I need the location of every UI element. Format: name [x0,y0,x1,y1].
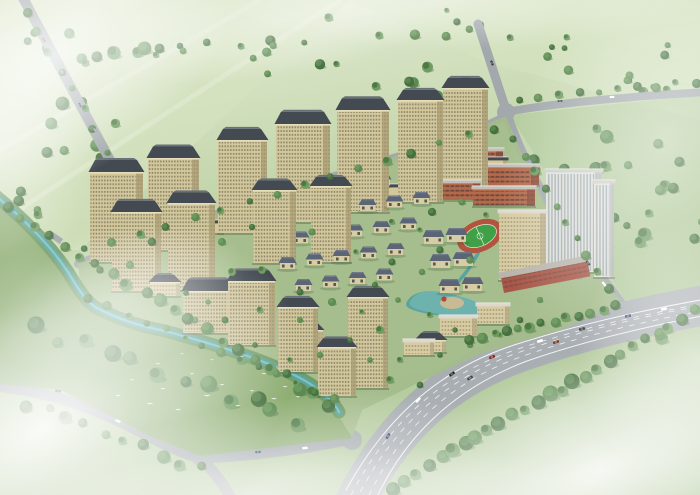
tree-highlight [383,157,389,163]
tree-highlight [453,328,456,331]
tree-highlight [395,297,398,300]
tree-highlight [436,140,440,144]
villa-window [317,261,320,264]
window-grid-side [351,349,356,395]
villa-window [477,286,480,289]
villa-window [362,207,365,210]
tree-highlight [301,181,306,186]
hipped-roof [111,201,163,212]
window-grid-side [430,344,434,354]
villa-window [442,288,445,291]
parapet [337,110,389,112]
villa-window [403,225,406,228]
villa-window [336,258,339,261]
parapet [443,88,488,90]
villa-window [390,251,393,254]
tree-highlight [459,199,463,203]
villa-window [445,263,448,266]
roof-ridge [153,145,193,147]
tree-highlight [477,333,484,340]
tree-highlight [376,326,381,331]
parapet [218,140,267,142]
parapet [311,186,351,188]
roof-ridge [421,331,440,333]
clubhouse-building [403,338,436,357]
window-grid [399,102,437,201]
roof-parapet-edge [403,338,436,339]
window-grid [478,308,505,323]
tree-highlight [297,289,301,293]
villa-window [389,203,392,206]
window-grid-side [437,102,443,201]
roof-ridge [283,296,312,298]
tree-highlight [483,212,487,216]
parapet [276,124,330,126]
tree-highlight [297,317,301,321]
tree-highlight [311,389,316,394]
villa-window [461,237,464,240]
tree-highlight [360,310,363,313]
parapet [148,158,199,160]
parapet [348,297,388,299]
tree-highlight [419,269,423,273]
tree-highlight [465,335,471,341]
roof-ridge [342,96,383,98]
villa-window [397,203,400,206]
tree-highlight [437,247,442,252]
roof-ridge [117,199,155,201]
tree-highlight [293,381,297,385]
villa-window [433,263,436,266]
tree-highlight [467,257,472,262]
tree-highlight [490,126,496,132]
villa-window [325,283,328,286]
tree-highlight [428,208,433,213]
tree-highlight [514,325,519,330]
building-shadow [403,355,435,357]
roof-parapet-edge [476,302,511,303]
roof-ridge [403,88,437,90]
villa-window [303,239,306,242]
tree-highlight [354,250,357,253]
villa-window [438,239,441,242]
tree-highlight [317,352,321,356]
villa-window [363,254,366,257]
roof-ridge [448,76,482,78]
roof-parapet-edge [439,314,479,315]
building-shadow [476,324,510,326]
parapet [112,212,161,214]
parapet [398,100,443,102]
parapet [253,190,296,192]
tree-highlight [372,282,376,286]
villa-window [360,280,363,283]
plaza-red-feature [441,296,446,301]
villa-window [371,254,374,257]
villa-window [282,265,285,268]
tree-highlight [418,228,421,231]
hipped-roof [442,78,490,88]
villa-window [454,288,457,291]
parapet [90,172,143,174]
residential-tower [397,88,445,204]
window-grid-side [383,299,388,387]
villa-window [387,276,390,279]
tree-highlight [192,213,197,218]
villa-window [376,229,379,232]
hipped-roof [397,90,445,100]
clubhouse-building [439,314,479,338]
tree-highlight [386,376,391,381]
tree-highlight [355,165,360,170]
hipped-roof [336,98,391,110]
tree-highlight [525,323,532,330]
villa-window [424,200,427,203]
tree-highlight [217,207,221,211]
window-grid-side [313,309,318,371]
window-grid [254,192,290,262]
villa-window [333,283,336,286]
hipped-roof [217,129,269,140]
villa-window [449,237,452,240]
hipped-roof [347,288,390,297]
tree-highlight [247,198,251,202]
villa-window [344,258,347,261]
tree-highlight [274,191,279,196]
hipped-roof [147,147,201,158]
masterplan-aerial-rendering [0,0,700,495]
tree-highlight [389,259,393,263]
tree-highlight [367,357,371,361]
tree-highlight [417,382,421,386]
tree-highlight [327,174,331,178]
tree-highlight [407,149,413,155]
villa-window [411,225,414,228]
roof-ridge [323,336,350,338]
window-grid-side [482,90,488,191]
window-grid [441,320,472,335]
tree-highlight [517,317,521,321]
roof-ridge [173,190,209,192]
residential-tower [252,178,298,265]
midrise-slab [317,336,358,398]
tree-highlight [309,229,313,233]
window-grid-side [290,192,296,262]
villa-window [384,229,387,232]
tree-highlight [397,357,401,361]
villa-window [357,232,360,235]
tree-highlight [437,352,440,355]
tree-highlight [389,219,393,223]
tree-highlight [465,131,470,136]
window-grid-side [442,342,446,351]
villa-window [416,200,419,203]
parapet [168,203,215,205]
roof-ridge [258,178,290,180]
roof-ridge [281,110,324,112]
villa-window [456,261,459,264]
tree-highlight [427,312,431,316]
clubhouse-building [476,302,511,326]
villa-window [370,207,373,210]
villa-window [309,261,312,264]
tree-highlight [328,298,333,303]
villa-window [465,286,468,289]
window-grid [444,90,482,191]
window-grid-side [472,320,477,335]
tree-highlight [348,337,351,340]
tree-highlight [423,62,430,69]
tree-highlight [249,224,253,228]
rendering-canvas [0,0,700,495]
tree-highlight [405,77,411,83]
window-grid [405,344,430,354]
villa-window [379,276,382,279]
villa-window [306,287,309,290]
villa-window [426,239,429,242]
hipped-roof [167,192,217,203]
tree-highlight [492,330,497,335]
hipped-roof [275,112,332,124]
tree-highlight [502,326,508,332]
tree-highlight [372,82,378,88]
hipped-roof [252,180,298,190]
villa-window [352,280,355,283]
window-grid-side [505,308,509,323]
roof-ridge [223,127,261,129]
villa-window [398,251,401,254]
villa-window [290,265,293,268]
window-grid [319,349,351,395]
parapet [318,347,356,349]
